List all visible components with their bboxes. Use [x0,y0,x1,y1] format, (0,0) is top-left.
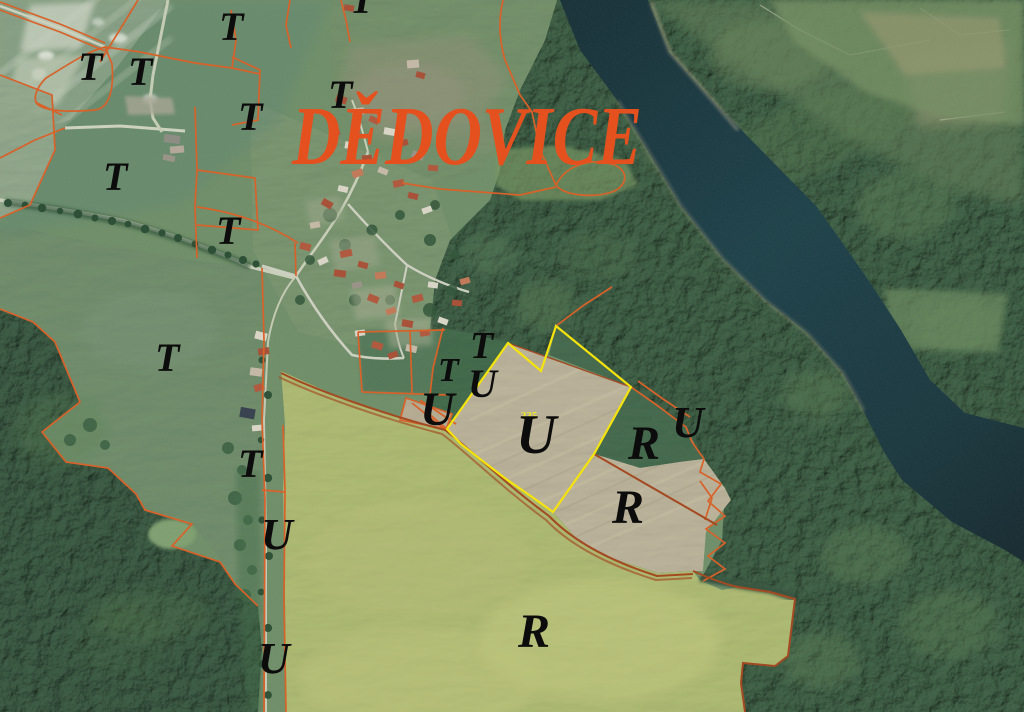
svg-text:T: T [216,208,242,253]
svg-text:R: R [627,417,660,470]
svg-text:U: U [258,634,292,683]
svg-text:R: R [517,605,550,658]
svg-text:T: T [219,4,245,49]
svg-text:T: T [78,44,104,89]
svg-text:U: U [468,361,499,406]
svg-text:T: T [350,0,376,22]
svg-text:T: T [238,94,264,139]
svg-text:T: T [238,441,264,486]
svg-text:T: T [103,154,129,199]
svg-text:U: U [672,398,706,447]
svg-text:U: U [420,383,457,436]
svg-text:T: T [155,335,181,380]
svg-text:R: R [611,481,644,534]
svg-text:U: U [516,404,559,466]
svg-text:T: T [128,49,154,94]
svg-text:U: U [261,510,295,559]
svg-text:DĚDOVICE: DĚDOVICE [291,90,642,183]
